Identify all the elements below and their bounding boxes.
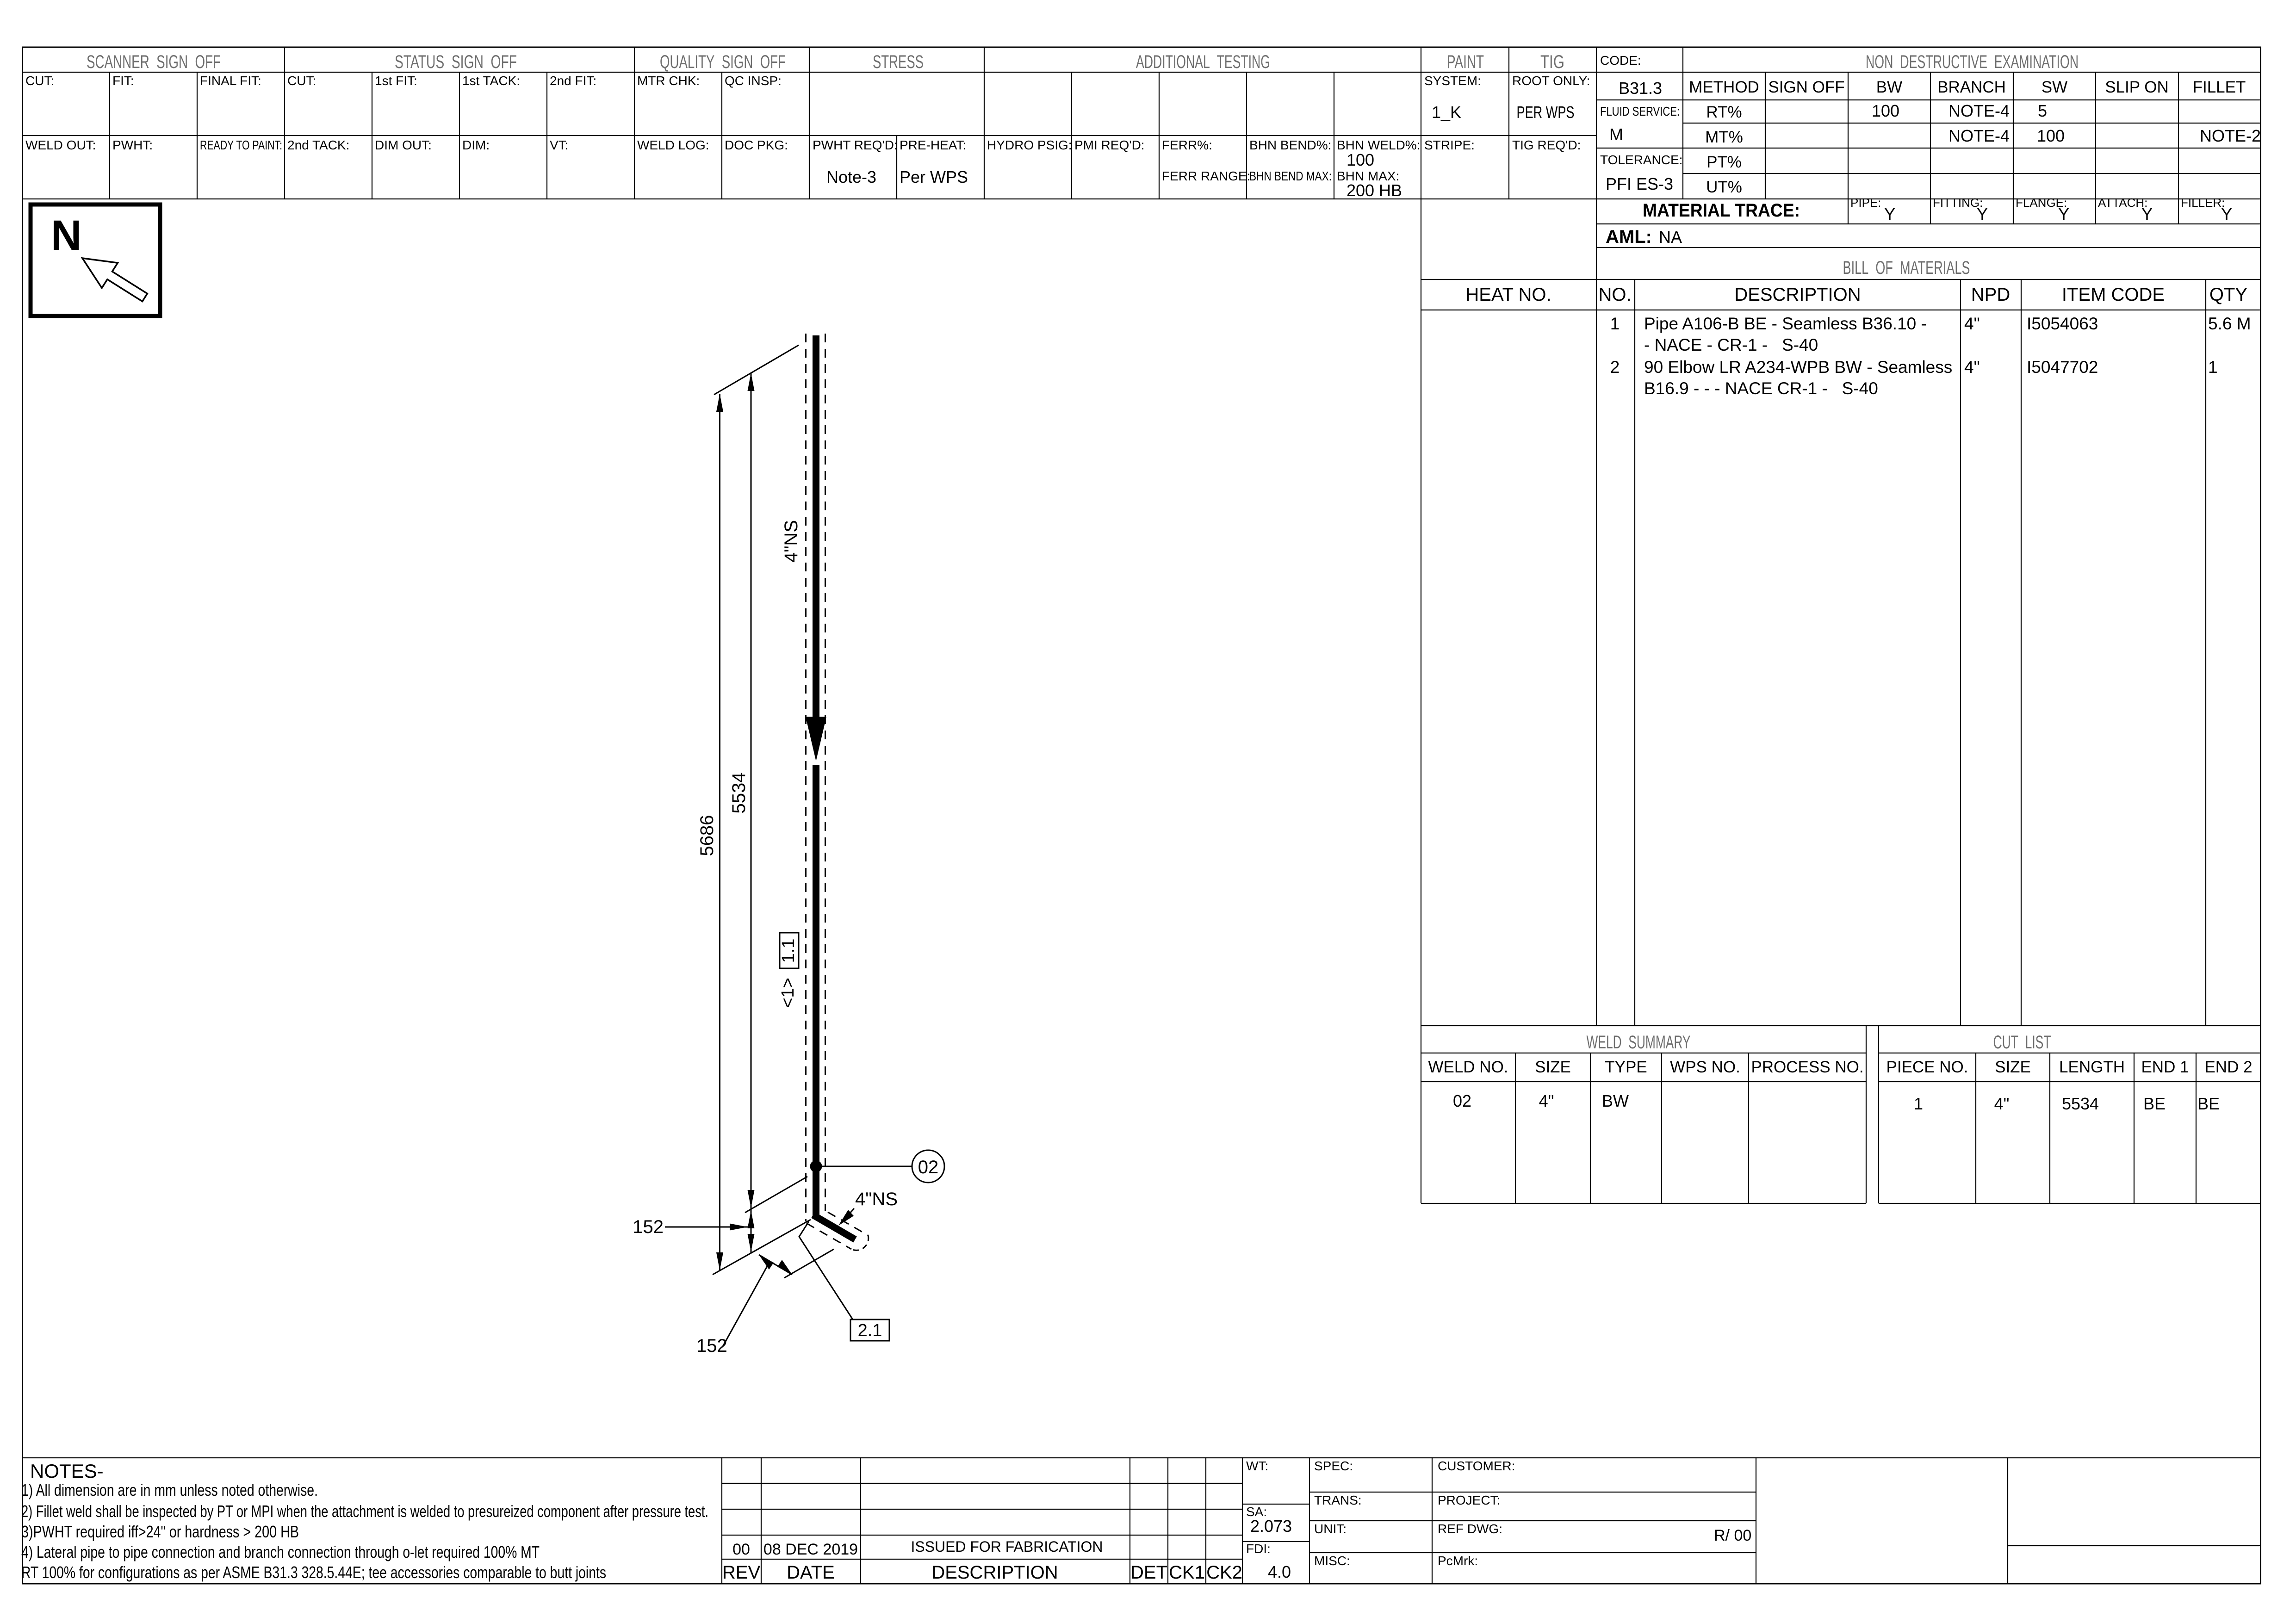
svg-text:FERR%:: FERR%: <box>1162 138 1212 152</box>
svg-text:CODE:: CODE: <box>1600 53 1641 68</box>
svg-text:4": 4" <box>1539 1091 1554 1110</box>
svg-text:DATE: DATE <box>787 1562 835 1583</box>
svg-text:TRANS:: TRANS: <box>1314 1493 1362 1507</box>
svg-text:METHOD: METHOD <box>1689 78 1759 96</box>
svg-text:1: 1 <box>1610 314 1620 333</box>
svg-text:R/ 00: R/ 00 <box>1714 1527 1751 1544</box>
svg-text:4": 4" <box>1994 1094 2010 1113</box>
svg-text:NOTE-4: NOTE-4 <box>1948 126 2010 145</box>
svg-text:PWHT REQ'D:: PWHT REQ'D: <box>813 138 898 152</box>
svg-text:RT%: RT% <box>1706 103 1742 121</box>
svg-text:PWHT:: PWHT: <box>112 138 153 152</box>
svg-text:SLIP ON: SLIP ON <box>2105 78 2168 96</box>
svg-text:SCANNER SIGN OFF: SCANNER SIGN OFF <box>87 52 221 72</box>
svg-text:5686: 5686 <box>697 815 717 856</box>
svg-text:DIM:: DIM: <box>462 138 490 152</box>
svg-text:NOTE-4: NOTE-4 <box>1948 101 2010 120</box>
svg-text:NOTE-2: NOTE-2 <box>2200 126 2261 145</box>
svg-text:FILLER:: FILLER: <box>2181 196 2225 210</box>
svg-text:02: 02 <box>918 1157 939 1177</box>
svg-text:M: M <box>1609 125 1623 144</box>
svg-text:QC INSP:: QC INSP: <box>725 74 782 88</box>
svg-text:PT%: PT% <box>1706 153 1742 171</box>
svg-text:STRIPE:: STRIPE: <box>1424 138 1475 152</box>
svg-text:PER WPS: PER WPS <box>1517 103 1575 122</box>
svg-text:UT%: UT% <box>1706 178 1742 196</box>
svg-text:CUT:: CUT: <box>287 74 316 88</box>
svg-text:TIG REQ'D:: TIG REQ'D: <box>1512 138 1581 152</box>
svg-text:100: 100 <box>1872 101 1899 120</box>
svg-text:N: N <box>51 212 81 259</box>
svg-text:2.073: 2.073 <box>1250 1517 1292 1536</box>
svg-text:CUSTOMER:: CUSTOMER: <box>1438 1459 1515 1473</box>
svg-text:NON DESTRUCTIVE EXAMINATION: NON DESTRUCTIVE EXAMINATION <box>1866 52 2079 72</box>
svg-text:CK2: CK2 <box>1206 1562 1242 1583</box>
svg-text:LENGTH: LENGTH <box>2059 1058 2125 1076</box>
svg-text:UNIT:: UNIT: <box>1314 1522 1347 1536</box>
svg-text:DESCRIPTION: DESCRIPTION <box>1734 285 1861 305</box>
svg-text:FDI:: FDI: <box>1246 1542 1271 1556</box>
svg-text:1: 1 <box>1914 1094 1923 1113</box>
svg-text:HEAT NO.: HEAT NO. <box>1465 285 1551 305</box>
svg-text:STRESS: STRESS <box>873 52 924 72</box>
svg-text:FIT:: FIT: <box>112 74 134 88</box>
svg-text:MISC:: MISC: <box>1314 1554 1350 1568</box>
svg-text:PIECE NO.: PIECE NO. <box>1886 1058 1968 1076</box>
svg-text:FILLET: FILLET <box>2193 78 2246 96</box>
svg-text:MTR CHK:: MTR CHK: <box>637 74 700 88</box>
svg-text:ISSUED FOR FABRICATION: ISSUED FOR FABRICATION <box>911 1538 1103 1555</box>
svg-text:Y: Y <box>1884 204 1895 223</box>
svg-text:REF DWG:: REF DWG: <box>1438 1522 1502 1536</box>
svg-text:DOC PKG:: DOC PKG: <box>725 138 788 152</box>
svg-text:200 HB: 200 HB <box>1347 181 1402 200</box>
svg-text:1st TACK:: 1st TACK: <box>462 74 520 88</box>
svg-text:2.1: 2.1 <box>858 1321 882 1340</box>
svg-text:END 1: END 1 <box>2141 1058 2189 1076</box>
svg-text:ROOT ONLY:: ROOT ONLY: <box>1512 74 1590 88</box>
svg-text:2nd TACK:: 2nd TACK: <box>287 138 349 152</box>
svg-text:BHN BEND MAX:: BHN BEND MAX: <box>1249 169 1332 183</box>
svg-text:SIGN OFF: SIGN OFF <box>1768 78 1844 96</box>
svg-text:FINAL FIT:: FINAL FIT: <box>200 74 261 88</box>
svg-text:4": 4" <box>1964 358 1980 377</box>
svg-text:5534: 5534 <box>729 773 749 814</box>
svg-text:3)PWHT required iff>24" or har: 3)PWHT required iff>24" or hardness > 20… <box>21 1522 299 1541</box>
svg-text:VT:: VT: <box>550 138 568 152</box>
svg-text:PROJECT:: PROJECT: <box>1438 1493 1500 1507</box>
svg-text:4": 4" <box>1964 314 1980 333</box>
svg-text:WELD NO.: WELD NO. <box>1428 1058 1508 1076</box>
svg-text:PIPE:: PIPE: <box>1850 196 1881 210</box>
svg-text:NO.: NO. <box>1598 285 1631 305</box>
svg-text:MATERIAL TRACE:: MATERIAL TRACE: <box>1643 200 1800 221</box>
svg-text:Y: Y <box>1977 204 1988 223</box>
svg-text:BW: BW <box>1876 78 1902 96</box>
svg-text:90 Elbow LR A234-WPB BW - Seam: 90 Elbow LR A234-WPB BW - Seamless <box>1644 358 1952 377</box>
svg-text:2) Fillet weld shall be inspec: 2) Fillet weld shall be inspected by PT … <box>21 1502 708 1521</box>
svg-text:Per WPS: Per WPS <box>900 167 968 186</box>
svg-text:NOTES-: NOTES- <box>30 1460 104 1482</box>
svg-text:4.0: 4.0 <box>1268 1562 1291 1581</box>
svg-text:TOLERANCE:: TOLERANCE: <box>1600 153 1682 167</box>
svg-text:FERR RANGE:: FERR RANGE: <box>1162 169 1250 183</box>
svg-text:4) Lateral pipe to pipe connec: 4) Lateral pipe to pipe connection and b… <box>21 1542 540 1561</box>
svg-text:QTY: QTY <box>2209 285 2247 305</box>
svg-text:SPEC:: SPEC: <box>1314 1459 1353 1473</box>
svg-text:5.6 M: 5.6 M <box>2208 314 2251 333</box>
svg-text:1) All dimension are in mm unl: 1) All dimension are in mm unless noted … <box>21 1481 318 1499</box>
svg-text:00: 00 <box>732 1541 750 1558</box>
svg-text:HYDRO PSIG:: HYDRO PSIG: <box>987 138 1072 152</box>
svg-text:PFI ES-3: PFI ES-3 <box>1606 174 1673 193</box>
svg-text:CUT LIST: CUT LIST <box>1993 1032 2051 1053</box>
svg-text:SW: SW <box>2042 78 2067 96</box>
svg-text:ITEM CODE: ITEM CODE <box>2062 285 2165 305</box>
svg-text:BRANCH: BRANCH <box>1937 78 2006 96</box>
svg-text:BILL OF MATERIALS: BILL OF MATERIALS <box>1843 258 1970 278</box>
svg-text:2: 2 <box>1610 358 1620 377</box>
svg-text:2nd FIT:: 2nd FIT: <box>550 74 596 88</box>
svg-text:B31.3: B31.3 <box>1619 79 1662 98</box>
svg-text:BE: BE <box>2197 1094 2220 1113</box>
svg-text:REV: REV <box>722 1562 761 1583</box>
svg-text:ATTACH:: ATTACH: <box>2098 196 2147 210</box>
svg-text:TYPE: TYPE <box>1605 1058 1647 1076</box>
svg-text:5: 5 <box>2038 101 2047 120</box>
svg-text:BHN BEND%:: BHN BEND%: <box>1249 138 1331 152</box>
svg-text:I5047702: I5047702 <box>2027 358 2098 377</box>
svg-text:WELD SUMMARY: WELD SUMMARY <box>1587 1032 1691 1053</box>
svg-text:MT%: MT% <box>1705 128 1743 146</box>
svg-text:FLUID SERVICE:: FLUID SERVICE: <box>1600 104 1680 118</box>
svg-text:B16.9 - - - NACE CR-1 - S-40: B16.9 - - - NACE CR-1 - S-40 <box>1644 379 1878 398</box>
svg-text:1: 1 <box>2208 358 2218 377</box>
svg-text:PMI REQ'D:: PMI REQ'D: <box>1074 138 1145 152</box>
svg-text:NA: NA <box>1659 228 1682 247</box>
svg-text:ADDITIONAL TESTING: ADDITIONAL TESTING <box>1136 52 1270 72</box>
svg-text:1st FIT:: 1st FIT: <box>375 74 417 88</box>
svg-text:<1>: <1> <box>778 978 798 1008</box>
svg-text:DESCRIPTION: DESCRIPTION <box>931 1562 1058 1583</box>
svg-text:02: 02 <box>1453 1091 1471 1110</box>
svg-text:STATUS SIGN OFF: STATUS SIGN OFF <box>395 52 517 72</box>
svg-text:WPS NO.: WPS NO. <box>1670 1058 1740 1076</box>
svg-text:NPD: NPD <box>1971 285 2010 305</box>
svg-text:Y: Y <box>2221 204 2232 223</box>
svg-text:READY TO PAINT:: READY TO PAINT: <box>200 138 282 152</box>
svg-text:DET: DET <box>1130 1562 1167 1583</box>
svg-text:DIM OUT:: DIM OUT: <box>375 138 432 152</box>
svg-text:152: 152 <box>633 1217 664 1237</box>
svg-text:PAINT: PAINT <box>1447 52 1484 72</box>
svg-text:Pipe A106-B BE - Seamless B36.: Pipe A106-B BE - Seamless B36.10 - <box>1644 314 1927 333</box>
svg-text:PROCESS NO.: PROCESS NO. <box>1751 1058 1863 1076</box>
svg-text:4"NS: 4"NS <box>781 520 801 563</box>
svg-text:RT 100% for configurations as: RT 100% for configurations as per ASME B… <box>21 1563 606 1582</box>
svg-text:BW: BW <box>1602 1091 1629 1110</box>
svg-text:1_K: 1_K <box>1432 103 1461 122</box>
svg-text:WT:: WT: <box>1246 1459 1268 1473</box>
svg-text:QUALITY SIGN OFF: QUALITY SIGN OFF <box>660 52 786 72</box>
svg-text:- NACE - CR-1 - S-40: - NACE - CR-1 - S-40 <box>1644 335 1818 354</box>
svg-text:SYSTEM:: SYSTEM: <box>1424 74 1481 88</box>
svg-text:1.1: 1.1 <box>779 939 798 963</box>
svg-text:PRE-HEAT:: PRE-HEAT: <box>900 138 966 152</box>
svg-text:5534: 5534 <box>2062 1094 2099 1113</box>
svg-text:4"NS: 4"NS <box>855 1189 898 1209</box>
svg-text:Y: Y <box>2058 204 2069 223</box>
svg-text:FITTING:: FITTING: <box>1933 196 1983 210</box>
svg-text:100: 100 <box>2037 126 2065 145</box>
svg-text:END 2: END 2 <box>2204 1058 2252 1076</box>
svg-text:I5054063: I5054063 <box>2027 314 2098 333</box>
svg-text:TIG: TIG <box>1540 52 1564 72</box>
svg-text:SIZE: SIZE <box>1535 1058 1571 1076</box>
svg-text:WELD OUT:: WELD OUT: <box>25 138 96 152</box>
svg-text:100: 100 <box>1347 150 1374 169</box>
svg-text:BE: BE <box>2143 1094 2166 1113</box>
svg-text:Note-3: Note-3 <box>826 167 876 186</box>
svg-text:SIZE: SIZE <box>1995 1058 2031 1076</box>
svg-text:CK1: CK1 <box>1169 1562 1205 1583</box>
svg-text:PcMrk:: PcMrk: <box>1438 1554 1478 1568</box>
svg-text:Y: Y <box>2141 204 2153 223</box>
svg-text:CUT:: CUT: <box>25 74 54 88</box>
svg-text:AML:: AML: <box>1606 227 1652 247</box>
svg-text:WELD LOG:: WELD LOG: <box>637 138 709 152</box>
svg-text:08 DEC 2019: 08 DEC 2019 <box>763 1541 858 1558</box>
